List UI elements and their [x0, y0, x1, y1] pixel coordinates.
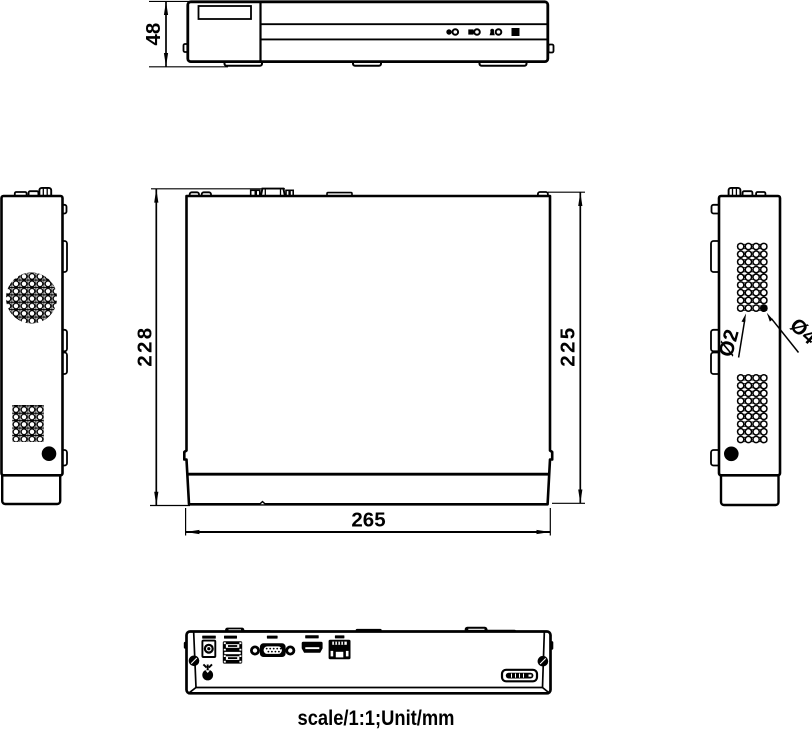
svg-text:48: 48 [142, 23, 165, 46]
svg-text:228: 228 [133, 328, 156, 367]
svg-text:scale/1:1;Unit/mm: scale/1:1;Unit/mm [298, 707, 455, 730]
svg-text:265: 265 [351, 509, 385, 532]
svg-text:225: 225 [557, 328, 580, 367]
